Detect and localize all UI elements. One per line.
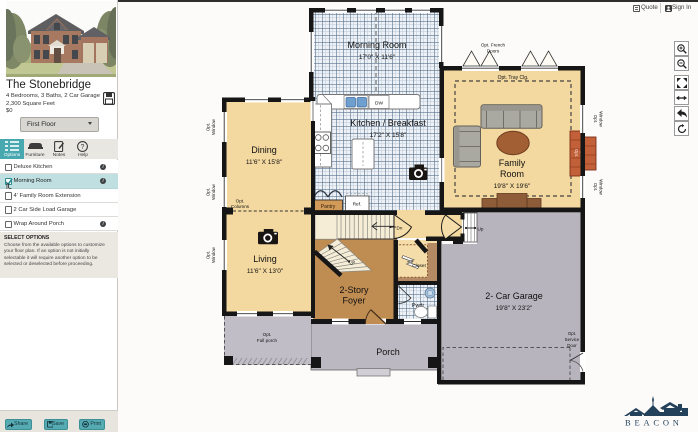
svg-text:Opt.: Opt. — [206, 123, 211, 131]
svg-text:Service: Service — [565, 337, 580, 342]
svg-text:Door: Door — [567, 343, 577, 348]
svg-text:2- Car Garage: 2- Car Garage — [485, 291, 543, 301]
svg-text:Opt.: Opt. — [593, 115, 598, 123]
svg-text:Opt. Tray Clg.: Opt. Tray Clg. — [498, 75, 529, 81]
svg-text:Opt. French: Opt. French — [481, 43, 506, 48]
svg-text:11'6" X 13'0": 11'6" X 13'0" — [247, 268, 284, 275]
svg-text:DW: DW — [375, 101, 383, 107]
svg-text:Porch: Porch — [376, 347, 400, 357]
svg-text:Window: Window — [211, 183, 216, 199]
svg-text:Opt.: Opt. — [206, 188, 211, 196]
svg-text:Kitchen / Breakfast: Kitchen / Breakfast — [350, 118, 426, 128]
svg-text:Full porch: Full porch — [257, 338, 278, 343]
svg-text:Closet: Closet — [412, 263, 426, 269]
svg-text:Columns: Columns — [231, 204, 250, 209]
svg-text:Opt.: Opt. — [236, 199, 245, 204]
svg-text:BEACON: BEACON — [625, 418, 683, 428]
svg-text:2-Story: 2-Story — [339, 285, 369, 295]
svg-text:Window: Window — [211, 118, 216, 134]
svg-text:19'8" X 19'6": 19'8" X 19'6" — [494, 183, 531, 190]
svg-text:Pantry: Pantry — [321, 204, 336, 210]
svg-text:19'8" X 23'2": 19'8" X 23'2" — [496, 305, 533, 312]
svg-text:Foyer: Foyer — [342, 296, 365, 306]
svg-text:Dining: Dining — [251, 145, 277, 155]
svg-text:Morning Room: Morning Room — [347, 40, 406, 50]
svg-text:17'0" X 11'6": 17'0" X 11'6" — [359, 54, 396, 61]
svg-text:Opt.: Opt. — [568, 331, 576, 336]
svg-text:17'2" X 15'8": 17'2" X 15'8" — [370, 132, 407, 139]
svg-text:Window: Window — [599, 179, 604, 195]
svg-text:Opt.: Opt. — [593, 183, 598, 191]
svg-text:Dn: Dn — [397, 226, 403, 231]
svg-text:Doors: Doors — [487, 49, 500, 54]
svg-text:Opt.: Opt. — [263, 332, 272, 337]
svg-text:11'6" X 15'8": 11'6" X 15'8" — [246, 159, 283, 166]
svg-text:Room: Room — [500, 169, 524, 179]
svg-text:Window: Window — [599, 111, 604, 127]
svg-text:Living: Living — [253, 254, 277, 264]
svg-text:Ref.: Ref. — [353, 202, 362, 208]
svg-text:Opt.: Opt. — [206, 251, 211, 259]
svg-text:Up: Up — [478, 227, 484, 232]
svg-text:Family: Family — [499, 158, 526, 168]
svg-text:Opt.: Opt. — [574, 149, 579, 157]
svg-text:Window: Window — [211, 246, 216, 262]
